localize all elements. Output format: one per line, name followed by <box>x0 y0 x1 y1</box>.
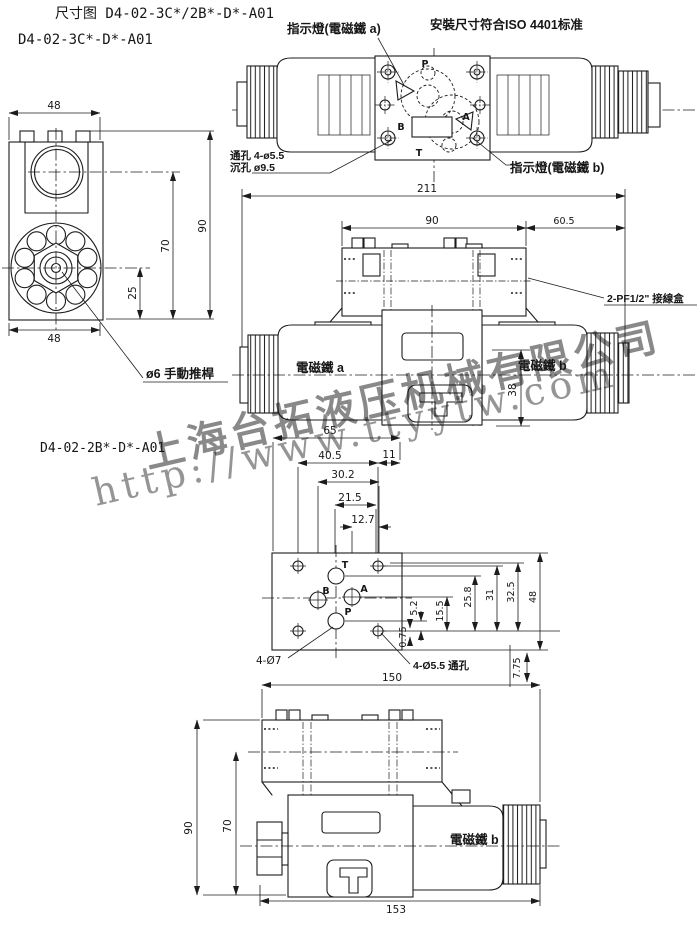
bottom-solenoid-b-body <box>413 806 503 890</box>
dim-12-7: 12.7 <box>351 514 374 526</box>
dim-15-5: 15.5 <box>435 600 446 621</box>
bottom-nut-hatched <box>503 805 540 884</box>
manual-pin-label: ø6 手動推桿 <box>146 366 215 381</box>
dim-48-bottom: 48 <box>47 333 60 345</box>
dim-60-5: 60.5 <box>553 216 574 227</box>
bottom-nameplate <box>322 812 380 833</box>
top-view: P T A B 指示燈(電磁鐵 b) 通孔 4-ø5.5 沉孔 ø9.5 <box>230 38 698 182</box>
mport-p-label: P <box>345 607 352 618</box>
dim-153: 153 <box>386 904 406 916</box>
through-hole-note: 通孔 4-ø5.5 <box>230 149 284 162</box>
dim-90-bottom: 90 <box>183 821 195 834</box>
drawing-canvas: 尺寸图 D4-02-3C*/2B*-D*-A01 D4-02-3C*-D*-A0… <box>0 0 700 925</box>
iso-standard-note: 安裝尺寸符合ISO 4401标准 <box>430 17 583 32</box>
dim-25-8: 25.8 <box>463 586 474 607</box>
mport-a-label: A <box>360 584 368 595</box>
dim-5-2: 5.2 <box>409 600 420 615</box>
nameplate <box>402 333 463 360</box>
mport-b-label: B <box>322 586 329 597</box>
left-nut-hatched <box>247 66 277 138</box>
dim-21-5: 21.5 <box>338 492 361 504</box>
terminal-box-label: 2-PF1/2" 接線盒 <box>607 292 684 305</box>
dim-11: 11 <box>382 449 395 461</box>
dim-211: 211 <box>417 183 437 195</box>
dim-7-75: 7.75 <box>512 657 523 678</box>
dim-32-5: 32.5 <box>506 581 517 602</box>
indicator-a-label: 指示燈(電磁鐵 a) <box>287 21 381 36</box>
port-b-label: B <box>397 122 404 133</box>
port-t-label: T <box>416 148 423 159</box>
holes-7-label: 4-Ø7 <box>256 655 281 667</box>
right-nut-band <box>618 71 648 133</box>
manual-override-hex <box>257 822 288 875</box>
dim-0-75: 0.75 <box>398 626 409 647</box>
dim-25: 25 <box>127 286 139 299</box>
bottom-solenoid-b-label: 電磁鐵 b <box>450 832 499 847</box>
top-tabs <box>20 131 90 142</box>
header: 尺寸图 D4-02-3C*/2B*-D*-A01 D4-02-3C*-D*-A0… <box>18 6 583 48</box>
indicator-b-label: 指示燈(電磁鐵 b) <box>510 160 604 175</box>
center-port-block <box>375 56 490 160</box>
dim-90-front: 90 <box>425 215 438 227</box>
bottom-view: 電磁鐵 b 90 70 153 <box>183 710 560 916</box>
holes-55-label: 4-Ø5.5 通孔 <box>413 659 470 672</box>
bottom-end-cap <box>540 820 546 868</box>
drawing-title: 尺寸图 D4-02-3C*/2B*-D*-A01 <box>55 6 274 22</box>
left-end-cap <box>237 82 247 126</box>
port-a-label: A <box>462 112 470 123</box>
dim-90: 90 <box>197 219 209 232</box>
spool-window <box>412 117 452 137</box>
dim-48-top: 48 <box>47 100 60 112</box>
dim-70: 70 <box>160 239 172 252</box>
counterbore-note: 沉孔 ø9.5 <box>230 161 275 174</box>
right-end-cap <box>648 83 660 127</box>
right-nut-hatched <box>592 66 618 138</box>
solenoid-a-label: 電磁鐵 a <box>296 360 345 375</box>
side-view: 48 48 25 70 90 ø6 手動推桿 <box>2 100 228 382</box>
front-left-nut <box>248 335 278 413</box>
mport-t-label: T <box>342 560 349 571</box>
port-p-label: P <box>422 59 429 70</box>
dim-31: 31 <box>485 589 496 601</box>
dim-30-2: 30.2 <box>331 469 354 481</box>
dim-150: 150 <box>382 672 402 684</box>
model-number-3c: D4-02-3C*-D*-A01 <box>18 32 153 48</box>
dim-70-bottom: 70 <box>222 819 234 832</box>
dim-48-plate: 48 <box>528 591 539 603</box>
left-solenoid-housing <box>277 58 388 152</box>
